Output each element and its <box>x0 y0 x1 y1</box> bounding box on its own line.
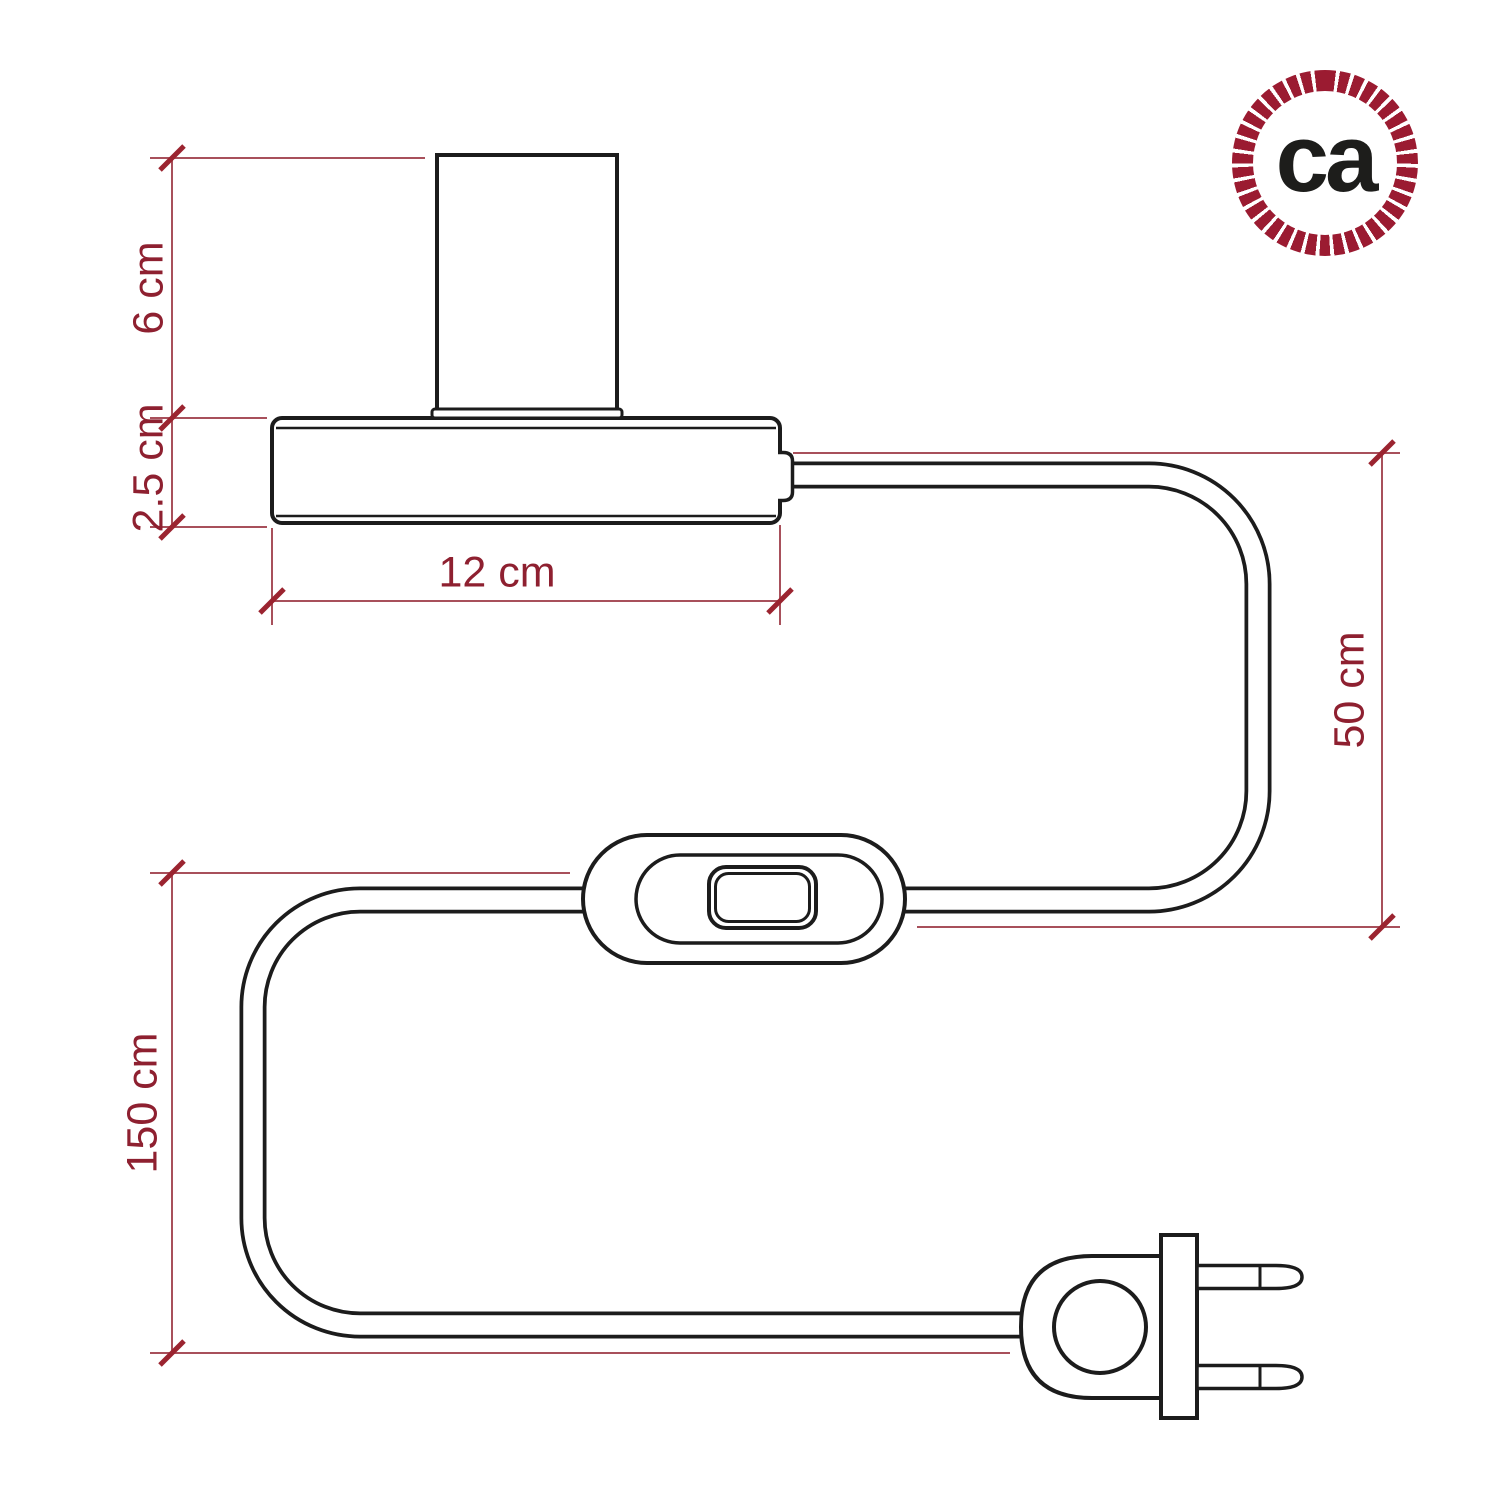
plug-face-plate <box>1161 1235 1197 1418</box>
plug-pin-bottom <box>1197 1366 1302 1389</box>
lamp-base <box>272 418 780 523</box>
dimension-ticks <box>160 146 1394 1365</box>
dim-label-cable-50: 50 cm <box>1329 631 1372 748</box>
switch-rocker-button <box>709 867 816 928</box>
inline-switch <box>583 835 905 963</box>
dim-label-cable-150: 150 cm <box>122 1032 165 1173</box>
brand-logo-text: ca <box>1276 104 1375 222</box>
socket-bottom-ring <box>432 409 622 418</box>
brand-logo: ca <box>1232 70 1418 256</box>
dim-label-socket-height: 6 cm <box>128 241 171 334</box>
power-plug <box>1021 1235 1302 1418</box>
brand-logo-inner-circle: ca <box>1253 91 1397 235</box>
dim-label-base-height: 2.5 cm <box>128 403 171 532</box>
plug-pin-top <box>1197 1266 1302 1289</box>
dim-label-base-width: 12 cm <box>438 552 555 595</box>
lamp-socket <box>437 155 617 413</box>
cable-exit-tab-fill <box>778 453 793 501</box>
plug-screw-hole <box>1054 1281 1146 1373</box>
dimension-lines <box>150 158 1400 1353</box>
